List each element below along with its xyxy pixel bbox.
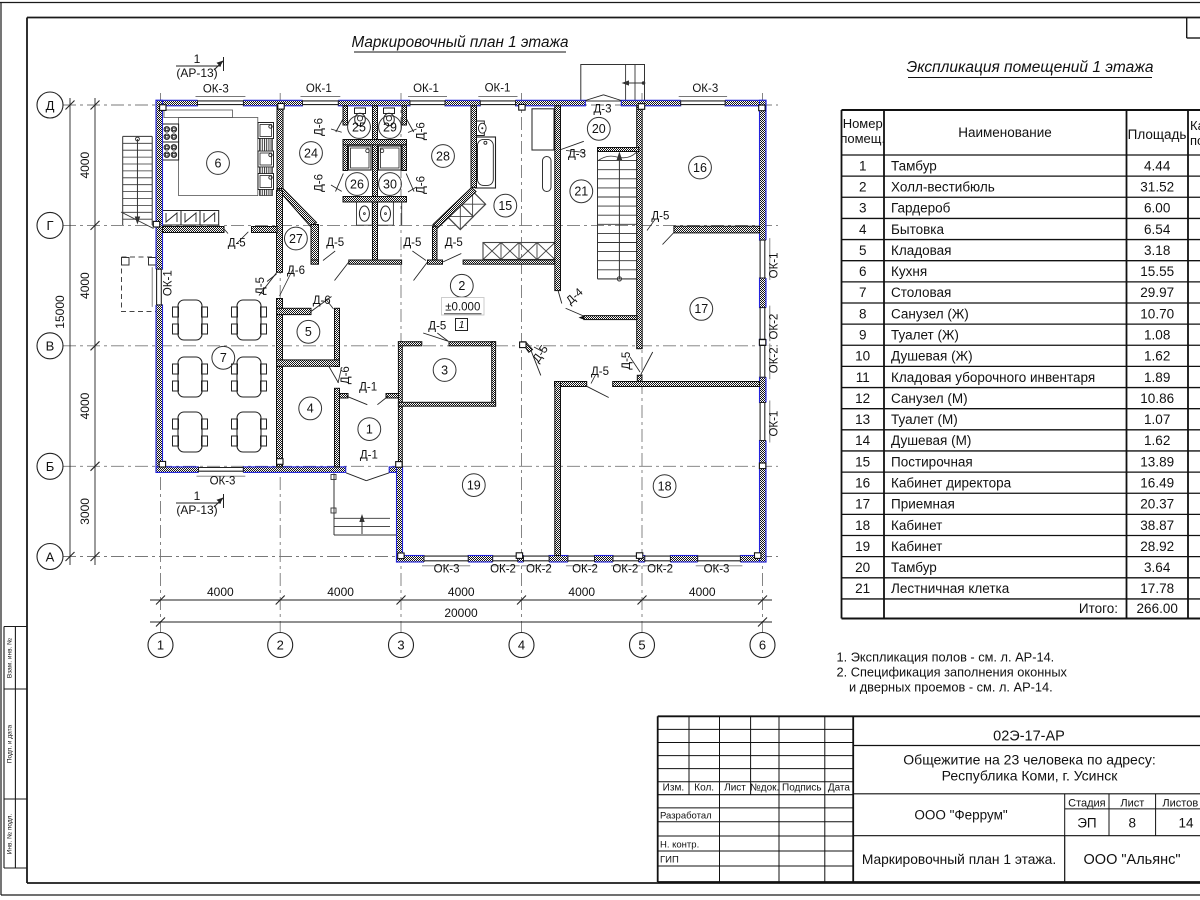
svg-text:2. Спецификация заполнения око: 2. Спецификация заполнения оконных <box>837 665 1068 680</box>
svg-text:ОК-1: ОК-1 <box>413 83 439 95</box>
svg-text:Лист: Лист <box>1120 798 1144 810</box>
svg-text:Маркировочный план 1 этажа: Маркировочный план 1 этажа <box>351 34 568 51</box>
svg-text:Номер: Номер <box>843 116 883 131</box>
svg-text:Д-5: Д-5 <box>403 237 421 249</box>
svg-text:ОК-1: ОК-1 <box>485 83 511 95</box>
svg-text:ОК-3: ОК-3 <box>210 476 236 488</box>
svg-text:19: 19 <box>467 478 481 492</box>
svg-text:Гардероб: Гардероб <box>891 201 951 216</box>
svg-text:16: 16 <box>693 161 707 175</box>
svg-text:Д-3: Д-3 <box>568 149 586 161</box>
svg-text:помещ.: помещ. <box>840 131 885 146</box>
svg-text:11: 11 <box>856 370 870 385</box>
svg-text:6.54: 6.54 <box>1144 222 1171 237</box>
svg-text:02Э-17-АР: 02Э-17-АР <box>993 729 1065 745</box>
svg-text:ОК-2: ОК-2 <box>647 563 673 575</box>
svg-text:6.00: 6.00 <box>1144 201 1170 216</box>
svg-text:Столовая: Столовая <box>891 285 951 300</box>
svg-text:12: 12 <box>855 391 870 406</box>
svg-text:15: 15 <box>498 199 512 213</box>
svg-text:(АР-13): (АР-13) <box>176 503 217 517</box>
svg-text:19: 19 <box>855 539 870 554</box>
svg-text:4: 4 <box>518 638 525 653</box>
svg-text:18: 18 <box>658 479 672 493</box>
svg-text:4: 4 <box>859 222 867 237</box>
svg-text:4000: 4000 <box>78 392 92 419</box>
svg-text:Наименование: Наименование <box>958 125 1052 140</box>
svg-text:ОК-1: ОК-1 <box>769 411 781 437</box>
svg-text:25: 25 <box>352 120 366 134</box>
svg-text:ГИП: ГИП <box>660 854 679 865</box>
svg-text:Ка: Ка <box>1190 118 1200 133</box>
svg-text:Д-6: Д-6 <box>314 174 326 192</box>
svg-text:Бытовка: Бытовка <box>891 222 944 237</box>
svg-text:1: 1 <box>157 638 164 653</box>
svg-text:Санузел (Ж): Санузел (Ж) <box>891 306 969 321</box>
svg-text:27: 27 <box>289 232 303 246</box>
svg-text:Д-5: Д-5 <box>445 237 463 249</box>
svg-text:2: 2 <box>458 279 465 293</box>
svg-text:Подп. и дата: Подп. и дата <box>7 724 14 763</box>
svg-text:Подпись: Подпись <box>782 783 822 794</box>
svg-text:13.89: 13.89 <box>1140 454 1174 469</box>
svg-text:Д-1: Д-1 <box>360 450 378 462</box>
svg-text:Стадия: Стадия <box>1068 798 1106 810</box>
svg-text:Тамбур: Тамбур <box>891 158 937 173</box>
svg-text:9: 9 <box>859 327 867 342</box>
svg-text:Душевая (М): Душевая (М) <box>891 433 971 448</box>
svg-text:15: 15 <box>855 454 870 469</box>
svg-text:Холл-вестибюль: Холл-вестибюль <box>891 180 995 195</box>
svg-text:ОК-2: ОК-2 <box>769 314 781 340</box>
svg-text:8: 8 <box>1129 816 1137 831</box>
svg-text:и дверных проемов - см. л. АР-: и дверных проемов - см. л. АР-14. <box>849 680 1053 695</box>
svg-text:4: 4 <box>307 402 314 416</box>
svg-text:Г: Г <box>46 218 53 233</box>
svg-text:ОК-2: ОК-2 <box>769 347 781 373</box>
svg-text:Д-6: Д-6 <box>340 366 352 384</box>
svg-text:(АР-13): (АР-13) <box>176 66 217 80</box>
svg-text:3: 3 <box>397 638 404 653</box>
svg-text:Санузел (М): Санузел (М) <box>891 391 968 406</box>
svg-text:1: 1 <box>859 158 867 173</box>
svg-text:Д-6: Д-6 <box>313 295 331 307</box>
svg-text:ОК-3: ОК-3 <box>203 83 229 95</box>
svg-text:ОК-2: ОК-2 <box>612 563 638 575</box>
svg-text:2: 2 <box>859 180 867 195</box>
svg-text:Д-3: Д-3 <box>593 103 611 115</box>
svg-text:Площадь: Площадь <box>1128 127 1187 142</box>
svg-text:4000: 4000 <box>568 585 595 599</box>
svg-text:1.62: 1.62 <box>1144 349 1170 364</box>
svg-text:Кладовая: Кладовая <box>891 243 951 258</box>
svg-text:31.52: 31.52 <box>1140 180 1174 195</box>
svg-text:1.89: 1.89 <box>1144 370 1170 385</box>
svg-text:10.70: 10.70 <box>1140 306 1174 321</box>
svg-text:1.62: 1.62 <box>1144 433 1170 448</box>
svg-text:20: 20 <box>592 122 606 136</box>
svg-text:ОК-3: ОК-3 <box>434 563 460 575</box>
svg-text:16: 16 <box>855 475 870 490</box>
svg-text:Инв. № подл.: Инв. № подл. <box>7 814 14 855</box>
svg-text:4000: 4000 <box>689 585 716 599</box>
svg-text:3: 3 <box>859 201 867 216</box>
svg-text:6: 6 <box>215 156 222 170</box>
svg-text:5: 5 <box>305 325 312 339</box>
svg-text:Кабинет директора: Кабинет директора <box>891 475 1012 490</box>
svg-text:Д-6: Д-6 <box>314 118 326 136</box>
svg-text:8: 8 <box>859 306 867 321</box>
svg-text:Кабинет: Кабинет <box>891 539 942 554</box>
svg-text:2: 2 <box>277 638 284 653</box>
svg-text:Тамбур: Тамбур <box>891 560 937 575</box>
svg-text:Туалет (Ж): Туалет (Ж) <box>891 327 959 342</box>
svg-text:38.87: 38.87 <box>1140 518 1174 533</box>
svg-text:3.64: 3.64 <box>1144 560 1171 575</box>
svg-text:Изм.: Изм. <box>663 783 684 794</box>
svg-text:Листов: Листов <box>1162 798 1198 810</box>
svg-text:6: 6 <box>859 264 867 279</box>
svg-text:Д-1: Д-1 <box>359 382 377 394</box>
svg-text:6: 6 <box>759 638 766 653</box>
svg-text:17: 17 <box>855 497 870 512</box>
svg-text:Взам. инв. №: Взам. инв. № <box>7 638 14 678</box>
svg-text:Лист: Лист <box>724 783 746 794</box>
svg-text:13: 13 <box>855 412 870 427</box>
svg-text:26: 26 <box>350 177 364 191</box>
svg-text:Д-6: Д-6 <box>416 122 428 140</box>
svg-text:1.08: 1.08 <box>1144 327 1170 342</box>
svg-text:ОК-2: ОК-2 <box>490 563 516 575</box>
svg-text:Республика Коми, г. Усинск: Республика Коми, г. Усинск <box>942 768 1119 784</box>
svg-text:3: 3 <box>441 363 448 377</box>
svg-text:28.92: 28.92 <box>1140 539 1174 554</box>
svg-text:29.97: 29.97 <box>1140 285 1174 300</box>
svg-text:7: 7 <box>859 285 867 300</box>
svg-text:20: 20 <box>855 560 870 575</box>
svg-text:30: 30 <box>383 177 397 191</box>
svg-text:1: 1 <box>366 422 373 436</box>
svg-text:28: 28 <box>436 149 450 163</box>
svg-text:Общежитие на 23 человека по ад: Общежитие на 23 человека по адресу: <box>903 752 1155 768</box>
svg-text:4000: 4000 <box>78 152 92 179</box>
svg-text:Экспликация помещений 1 этажа: Экспликация помещений 1 этажа <box>906 59 1153 76</box>
svg-text:Постирочная: Постирочная <box>891 454 973 469</box>
svg-text:ОК-1: ОК-1 <box>769 252 781 278</box>
svg-text:Д-5: Д-5 <box>255 277 267 295</box>
svg-text:±0.000: ±0.000 <box>445 302 480 314</box>
svg-text:Кабинет: Кабинет <box>891 518 942 533</box>
svg-text:3.18: 3.18 <box>1144 243 1170 258</box>
svg-text:14: 14 <box>855 433 871 448</box>
svg-text:Д-5: Д-5 <box>326 237 344 249</box>
svg-text:1. Экспликация полов - см. л.: 1. Экспликация полов - см. л. АР-14. <box>837 650 1055 665</box>
svg-text:16.49: 16.49 <box>1140 475 1174 490</box>
svg-text:В: В <box>46 339 55 354</box>
svg-text:Дата: Дата <box>828 783 851 794</box>
svg-text:20000: 20000 <box>444 606 478 620</box>
svg-text:Д-5: Д-5 <box>591 366 609 378</box>
svg-text:Разработал: Разработал <box>660 810 712 821</box>
svg-text:29: 29 <box>383 120 397 134</box>
svg-text:Б: Б <box>46 459 55 474</box>
svg-text:Д-5: Д-5 <box>621 352 633 370</box>
svg-text:5: 5 <box>859 243 867 258</box>
svg-text:1.07: 1.07 <box>1144 412 1170 427</box>
svg-text:17: 17 <box>694 302 708 316</box>
svg-text:Д-5: Д-5 <box>428 321 446 333</box>
svg-text:№док.: №док. <box>750 783 779 794</box>
svg-text:15000: 15000 <box>53 295 67 329</box>
svg-text:4000: 4000 <box>448 585 475 599</box>
svg-text:Н. контр.: Н. контр. <box>660 839 699 850</box>
svg-text:17.78: 17.78 <box>1140 581 1174 596</box>
svg-text:Туалет (М): Туалет (М) <box>891 412 958 427</box>
svg-text:10.86: 10.86 <box>1140 391 1174 406</box>
svg-text:4000: 4000 <box>78 272 92 299</box>
svg-text:24: 24 <box>304 146 318 160</box>
svg-text:4000: 4000 <box>327 585 354 599</box>
svg-text:ОК-2: ОК-2 <box>572 563 598 575</box>
svg-text:Итого:: Итого: <box>1079 601 1118 616</box>
svg-text:Кухня: Кухня <box>891 264 927 279</box>
svg-text:21: 21 <box>574 185 588 199</box>
svg-text:ОК-1: ОК-1 <box>306 83 332 95</box>
svg-text:3000: 3000 <box>78 498 92 525</box>
svg-text:4000: 4000 <box>207 585 234 599</box>
svg-text:Приемная: Приемная <box>891 497 955 512</box>
svg-text:А: А <box>46 549 55 564</box>
svg-text:ОК-2: ОК-2 <box>526 563 552 575</box>
svg-text:15.55: 15.55 <box>1140 264 1174 279</box>
svg-text:ЭП: ЭП <box>1077 816 1096 831</box>
svg-text:Д: Д <box>46 98 55 113</box>
svg-text:266.00: 266.00 <box>1137 601 1178 616</box>
svg-text:4.44: 4.44 <box>1144 158 1171 173</box>
svg-text:Лестничная клетка: Лестничная клетка <box>891 581 1010 596</box>
svg-text:21: 21 <box>855 581 870 596</box>
svg-text:ОК-1: ОК-1 <box>163 270 175 296</box>
svg-text:5: 5 <box>638 638 645 653</box>
svg-text:20.37: 20.37 <box>1140 497 1174 512</box>
svg-text:ООО "Феррум": ООО "Феррум" <box>914 808 1008 823</box>
svg-text:ОК-3: ОК-3 <box>704 563 730 575</box>
svg-text:Д-6: Д-6 <box>416 176 428 194</box>
svg-text:ООО "Альянс": ООО "Альянс" <box>1084 852 1181 868</box>
svg-text:Маркировочный план 1 этажа.: Маркировочный план 1 этажа. <box>862 852 1056 867</box>
svg-text:7: 7 <box>220 351 227 365</box>
svg-text:Кол.: Кол. <box>694 783 714 794</box>
svg-text:10: 10 <box>855 349 870 364</box>
svg-text:1: 1 <box>459 319 465 331</box>
svg-text:Душевая (Ж): Душевая (Ж) <box>891 349 973 364</box>
svg-text:14: 14 <box>1178 816 1194 831</box>
svg-text:1: 1 <box>194 489 201 503</box>
svg-text:по: по <box>1190 133 1200 148</box>
svg-text:Кладовая уборочного инвентаря: Кладовая уборочного инвентаря <box>891 370 1095 385</box>
svg-text:1: 1 <box>194 52 201 66</box>
svg-text:18: 18 <box>855 518 870 533</box>
svg-text:ОК-3: ОК-3 <box>692 83 718 95</box>
